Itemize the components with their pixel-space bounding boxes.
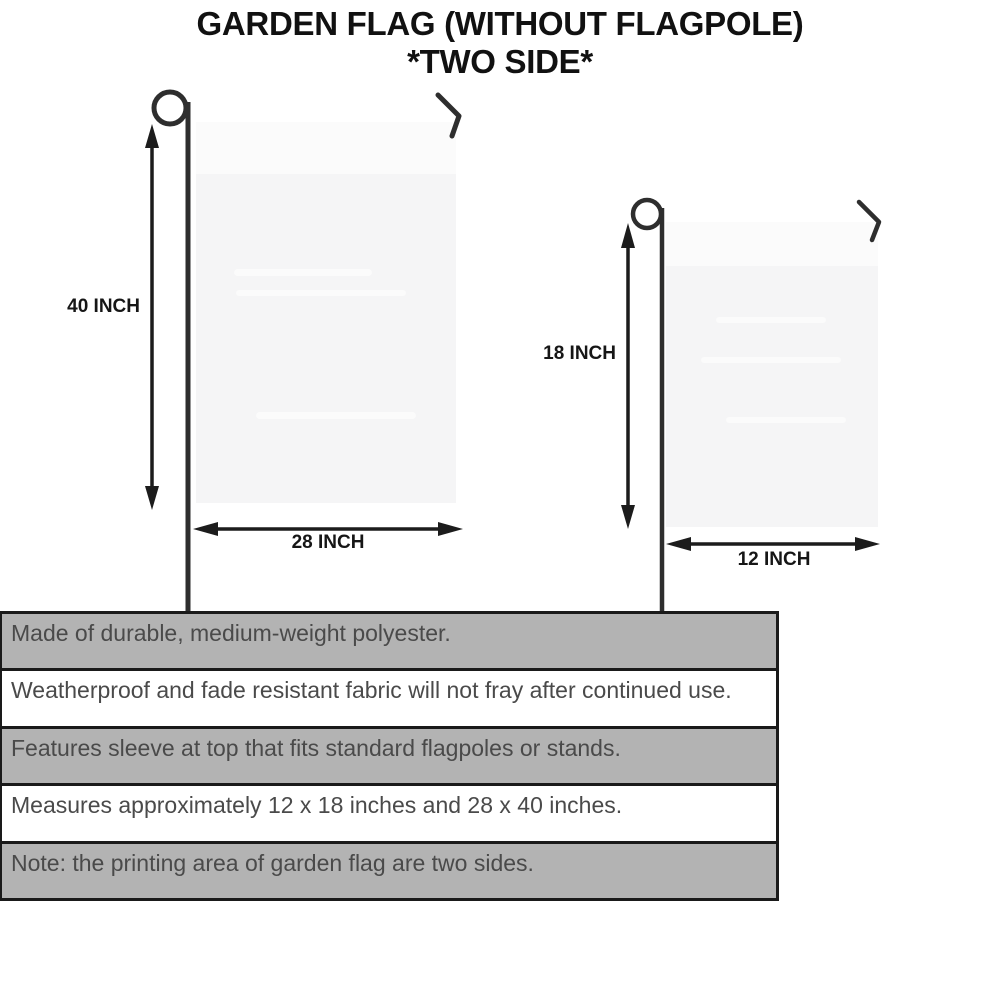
feature-row: Weatherproof and fade resistant fabric w… [2, 671, 776, 728]
large-height-arrow [145, 124, 159, 510]
page-subtitle: *TWO SIDE* [0, 44, 1000, 80]
small-pole-loop-icon [633, 200, 661, 228]
page-title: GARDEN FLAG (WITHOUT FLAGPOLE) [0, 6, 1000, 42]
small-flag-hook-icon [859, 202, 879, 240]
flag-diagram [0, 80, 1000, 611]
feature-row: Measures approximately 12 x 18 inches an… [2, 786, 776, 843]
feature-table: Made of durable, medium-weight polyester… [0, 611, 779, 901]
small-flag-height-label: 18 INCH [504, 343, 616, 365]
feature-row: Features sleeve at top that fits standar… [2, 729, 776, 786]
garden-flag-infographic: GARDEN FLAG (WITHOUT FLAGPOLE) *TWO SIDE… [0, 0, 1000, 1000]
feature-text: Weatherproof and fade resistant fabric w… [11, 677, 732, 703]
feature-row: Made of durable, medium-weight polyester… [2, 614, 776, 671]
large-flag-height-label: 40 INCH [28, 296, 140, 318]
large-pole-loop-icon [154, 92, 186, 124]
feature-text: Note: the printing area of garden flag a… [11, 850, 534, 876]
feature-text: Measures approximately 12 x 18 inches an… [11, 792, 622, 818]
small-height-arrow [621, 223, 635, 529]
large-flag-hook-icon [438, 95, 459, 136]
feature-text: Made of durable, medium-weight polyester… [11, 620, 451, 646]
feature-text: Features sleeve at top that fits standar… [11, 735, 621, 761]
large-flag-width-label: 28 INCH [246, 532, 410, 554]
feature-row: Note: the printing area of garden flag a… [2, 844, 776, 898]
small-flag-width-label: 12 INCH [692, 549, 856, 571]
